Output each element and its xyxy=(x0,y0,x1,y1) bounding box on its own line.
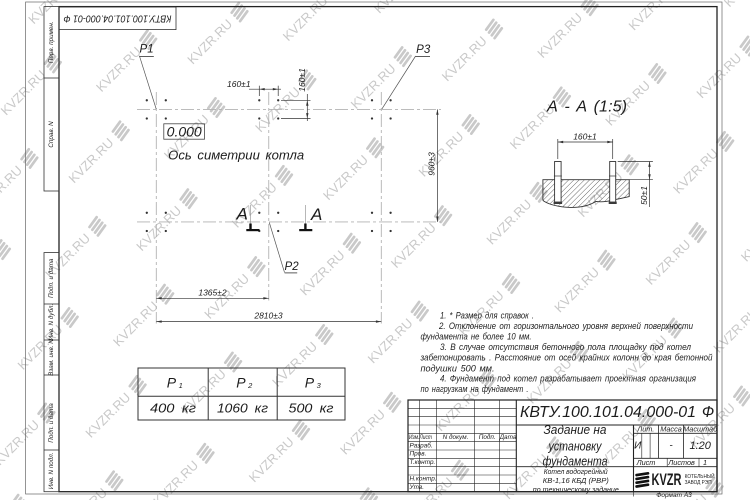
svg-text:фундамента не более 10 мм.: фундамента не более 10 мм. xyxy=(421,332,532,342)
svg-text:Пров.: Пров. xyxy=(410,451,427,458)
svg-text:А - А (1:5): А - А (1:5) xyxy=(546,98,627,115)
svg-text:160±1: 160±1 xyxy=(297,68,307,92)
svg-text:4. Фундамент под котел разраба: 4. Фундамент под котел разрабатывает про… xyxy=(440,373,696,383)
svg-text:Ф: Ф xyxy=(702,404,714,421)
svg-text:фундамента: фундамента xyxy=(543,454,608,468)
svg-text:Масштаб: Масштаб xyxy=(683,425,718,434)
svg-text:по нагрузкам на фундамент .: по нагрузкам на фундамент . xyxy=(421,384,529,394)
svg-text:1. * Размер для справок .: 1. * Размер для справок . xyxy=(440,311,534,321)
svg-text:160±1: 160±1 xyxy=(227,79,251,89)
svg-text:Формат А3: Формат А3 xyxy=(656,492,692,499)
svg-text:Р2: Р2 xyxy=(285,261,300,273)
svg-text:2. Отклонение от горизонтально: 2. Отклонение от горизонтального уровня … xyxy=(438,321,693,331)
svg-text:1365±2: 1365±2 xyxy=(198,287,227,297)
svg-text:установку: установку xyxy=(548,439,602,453)
svg-text:2810±3: 2810±3 xyxy=(253,311,283,321)
svg-text:Перв. примен.: Перв. примен. xyxy=(48,21,55,63)
svg-text:Утв.: Утв. xyxy=(409,484,425,491)
svg-text:Подп.: Подп. xyxy=(479,433,496,441)
svg-text:N докум.: N докум. xyxy=(443,433,469,441)
svg-text:А: А xyxy=(310,205,322,224)
svg-text:ЗАВОД РЭП: ЗАВОД РЭП xyxy=(685,480,712,486)
svg-text:Задание на: Задание на xyxy=(544,423,607,437)
svg-text:0.000: 0.000 xyxy=(167,124,202,140)
svg-text:КОТЕЛЬНЫЙ: КОТЕЛЬНЫЙ xyxy=(685,472,715,480)
svg-text:Лист: Лист xyxy=(636,458,656,467)
svg-text:Разраб.: Разраб. xyxy=(410,441,433,449)
svg-text:Ось симетрии котла: Ось симетрии котла xyxy=(168,147,304,162)
svg-text:Р3: Р3 xyxy=(416,44,431,56)
svg-text:Т.контр.: Т.контр. xyxy=(410,459,436,466)
svg-text:Н.контр.: Н.контр. xyxy=(410,476,437,483)
svg-text:Листов: Листов xyxy=(667,458,695,467)
svg-text:Инв. N дубл.: Инв. N дубл. xyxy=(47,304,55,340)
svg-text:Взам. инв. N: Взам. инв. N xyxy=(48,339,55,376)
svg-text:забетонировать . Расстояние от: забетонировать . Расстояние от осей край… xyxy=(420,353,713,363)
svg-text:400 кг: 400 кг xyxy=(150,401,197,416)
svg-text:3. В случае отсутствия бетонно: 3. В случае отсутствия бетонного пола пл… xyxy=(440,342,691,352)
svg-text:Справ. N: Справ. N xyxy=(48,121,55,148)
svg-text:1060 кг: 1060 кг xyxy=(217,401,269,416)
svg-text:Инв. N подл.: Инв. N подл. xyxy=(47,452,55,489)
svg-text:Лит.: Лит. xyxy=(636,425,654,434)
svg-text:1: 1 xyxy=(703,458,707,467)
svg-text:КВТУ.100.101.04.000-01: КВТУ.100.101.04.000-01 xyxy=(520,404,696,421)
svg-text:А: А xyxy=(236,205,248,224)
svg-text:KVZR: KVZR xyxy=(652,470,682,489)
svg-text:500 кг: 500 кг xyxy=(289,401,335,416)
svg-text:960±3: 960±3 xyxy=(426,152,436,176)
svg-text:КВ-1,16 КБД (РВР): КВ-1,16 КБД (РВР) xyxy=(543,476,610,485)
svg-text:подушки 500 мм.: подушки 500 мм. xyxy=(421,363,495,373)
svg-text:1:20: 1:20 xyxy=(689,440,711,452)
svg-text:160±1: 160±1 xyxy=(573,131,597,141)
svg-text:Дата: Дата xyxy=(499,434,517,441)
svg-text:И: И xyxy=(634,440,642,451)
svg-text:Подп. и дата: Подп. и дата xyxy=(47,403,55,443)
svg-text:Котел водогрейный: Котел водогрейный xyxy=(544,467,608,476)
svg-text:Изм.Лист: Изм.Лист xyxy=(409,434,433,441)
svg-text:КВТУ.100.101.04.000-01 Ф: КВТУ.100.101.04.000-01 Ф xyxy=(64,12,172,24)
svg-text:Подп. и дата: Подп. и дата xyxy=(47,258,55,298)
svg-text:по техническому задание: по техническому задание xyxy=(533,485,619,494)
svg-text:Масса: Масса xyxy=(660,425,682,434)
svg-text:50±1: 50±1 xyxy=(639,186,649,205)
svg-text:Р1: Р1 xyxy=(140,44,154,56)
